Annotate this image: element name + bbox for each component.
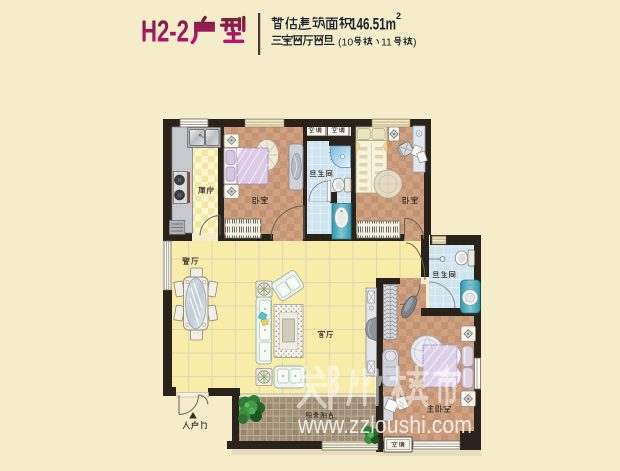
svg-text:www.zzloushi.com: www.zzloushi.com — [297, 412, 472, 439]
svg-text:146.51m: 146.51m — [350, 15, 396, 34]
svg-text:): ) — [413, 37, 417, 49]
svg-text:11: 11 — [381, 37, 392, 49]
svg-text:2: 2 — [396, 11, 401, 21]
svg-text:H2-2: H2-2 — [141, 14, 189, 49]
svg-text:(10: (10 — [338, 37, 353, 49]
